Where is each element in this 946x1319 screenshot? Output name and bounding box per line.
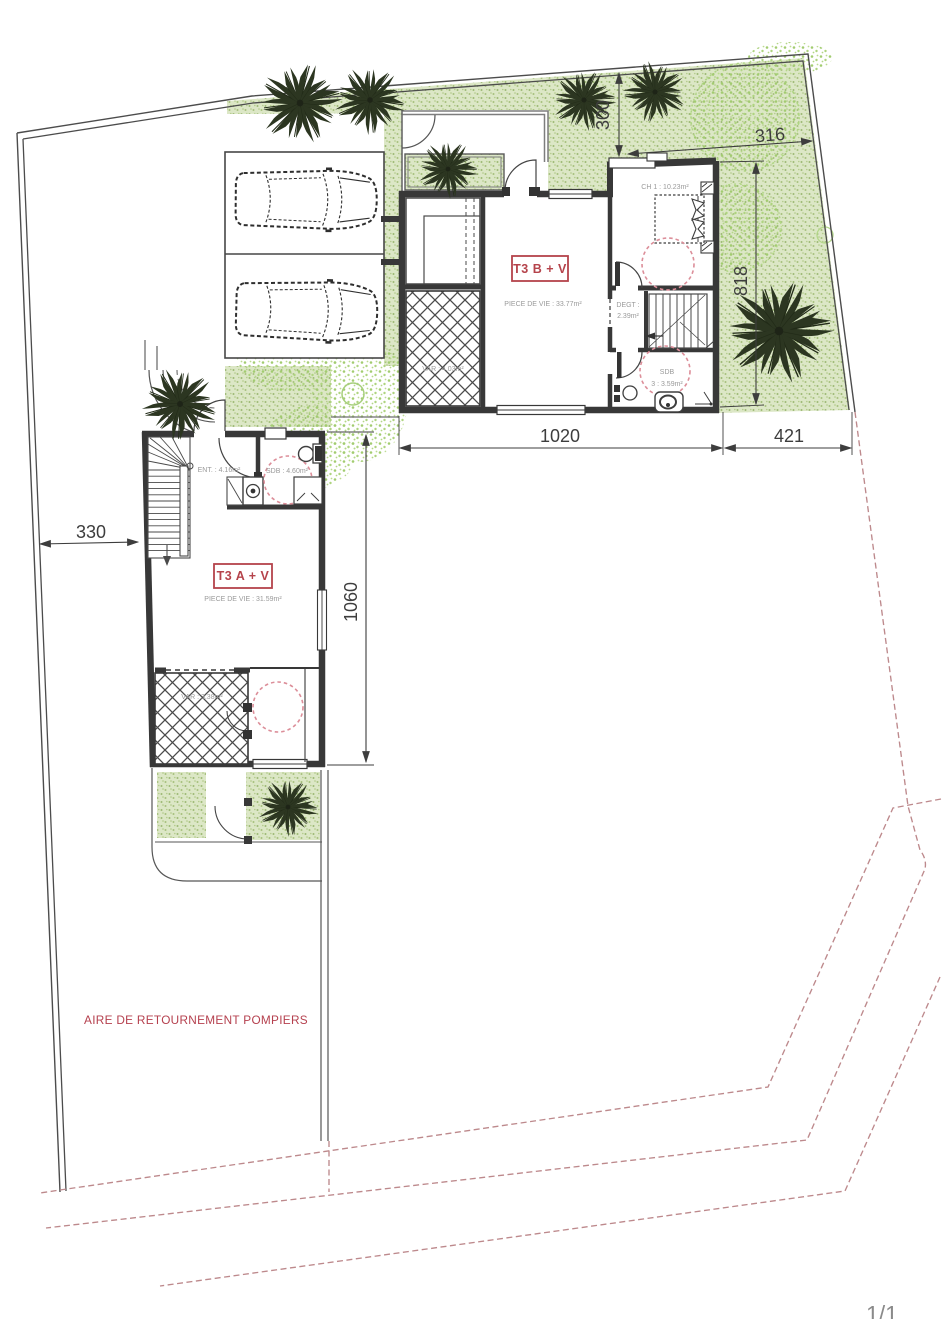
- svg-text:SDB : 4.60m²: SDB : 4.60m²: [266, 468, 309, 475]
- svg-text:300: 300: [593, 100, 613, 130]
- svg-text:DEGT :: DEGT :: [616, 302, 639, 309]
- svg-text:1020: 1020: [540, 426, 580, 446]
- svg-text:VAR : 4.03m²: VAR : 4.03m²: [422, 366, 464, 373]
- svg-text:1060: 1060: [341, 582, 361, 622]
- svg-text:PIECE DE VIE : 31.59m²: PIECE DE VIE : 31.59m²: [204, 596, 282, 603]
- svg-text:VAR : 3.38m²: VAR : 3.38m²: [181, 694, 223, 701]
- svg-text:CH 1 : 10.23m²: CH 1 : 10.23m²: [641, 184, 689, 191]
- svg-text:PIECE DE VIE : 33.77m²: PIECE DE VIE : 33.77m²: [504, 301, 582, 308]
- svg-text:SDB: SDB: [660, 369, 675, 376]
- svg-text:1/1: 1/1: [866, 1301, 898, 1319]
- svg-text:2.39m²: 2.39m²: [617, 313, 639, 320]
- svg-text:T3 A + V: T3 A + V: [217, 569, 270, 583]
- svg-text:ENT. : 4.16m²: ENT. : 4.16m²: [198, 467, 241, 474]
- svg-text:316: 316: [754, 124, 786, 146]
- svg-text:AIRE DE RETOURNEMENT POMPIERS: AIRE DE RETOURNEMENT POMPIERS: [84, 1013, 308, 1027]
- svg-text:818: 818: [731, 266, 751, 296]
- svg-text:T3 B + V: T3 B + V: [513, 262, 567, 276]
- svg-text:330: 330: [76, 522, 106, 542]
- svg-text:3 : 3.59m²: 3 : 3.59m²: [651, 381, 683, 388]
- svg-text:421: 421: [774, 426, 804, 446]
